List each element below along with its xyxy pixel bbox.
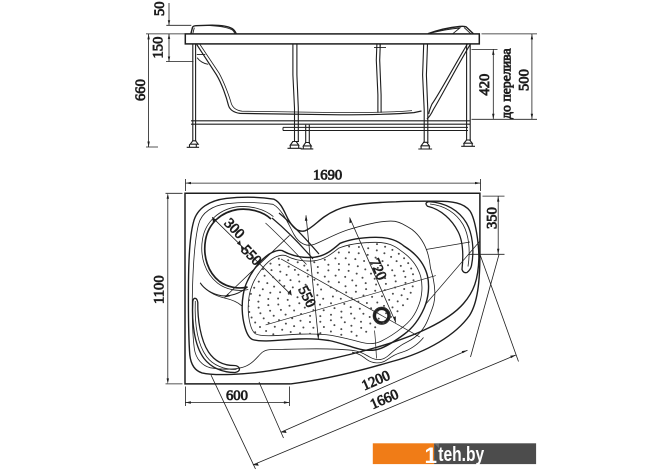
svg-text:150: 150 <box>151 37 167 59</box>
svg-text:teh.by: teh.by <box>438 443 484 465</box>
svg-text:420: 420 <box>477 74 493 96</box>
svg-text:300: 300 <box>221 215 248 242</box>
svg-text:500: 500 <box>516 69 532 91</box>
svg-text:1100: 1100 <box>152 275 168 304</box>
svg-text:600: 600 <box>226 388 248 404</box>
svg-text:50: 50 <box>152 1 168 16</box>
svg-text:350: 350 <box>485 207 501 229</box>
svg-text:до перелива: до перелива <box>499 48 514 119</box>
svg-text:1690: 1690 <box>313 167 342 183</box>
svg-text:660: 660 <box>133 79 149 101</box>
svg-text:1: 1 <box>425 443 438 468</box>
